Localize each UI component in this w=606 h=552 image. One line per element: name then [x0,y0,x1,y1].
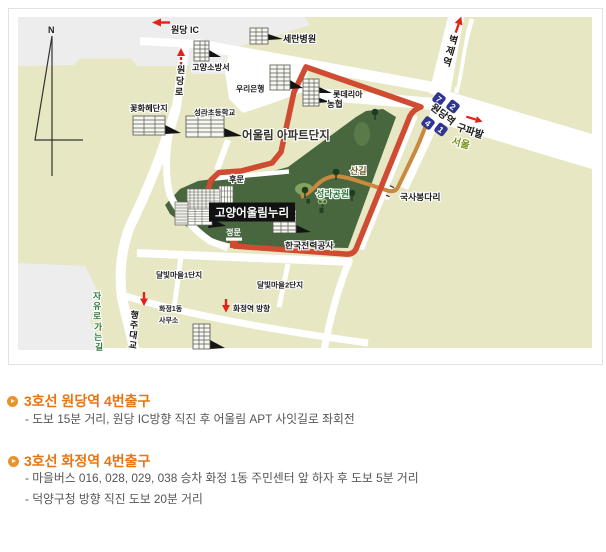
svg-text:당: 당 [176,75,185,86]
svg-text:화정1동: 화정1동 [159,304,183,313]
svg-text:가: 가 [94,321,102,332]
svg-text:롯데리아: 롯데리아 [333,89,363,99]
svg-text:N: N [48,25,55,35]
svg-text:산길: 산길 [350,165,367,176]
svg-text:성라초등학교: 성라초등학교 [194,107,235,117]
svg-text:세란병원: 세란병원 [283,33,316,44]
svg-text:길: 길 [95,341,103,352]
svg-text:꽃화헤단지: 꽃화헤단지 [130,103,168,113]
svg-text:국사봉다리: 국사봉다리 [400,191,440,202]
svg-text:교: 교 [128,340,138,351]
svg-text:자: 자 [93,290,102,301]
svg-text:로: 로 [175,87,184,97]
svg-text:사무소: 사무소 [159,316,179,325]
svg-text:정문: 정문 [226,227,242,237]
svg-text:달빛마을2단지: 달빛마을2단지 [257,280,303,290]
svg-text:어울림 아파트단지: 어울림 아파트단지 [242,128,330,142]
svg-text:로: 로 [93,311,101,321]
svg-text:달빛마을1단지: 달빛마을1단지 [156,270,202,280]
svg-text:후문: 후문 [229,174,245,184]
svg-text:유: 유 [93,301,101,311]
svg-text:는: 는 [94,332,102,342]
svg-text:농협: 농협 [327,99,343,109]
svg-text:원당 IC: 원당 IC [171,24,200,35]
svg-text:한국전력공사: 한국전력공사 [285,240,334,251]
svg-text:우리은행: 우리은행 [236,84,264,94]
svg-text:성라공원: 성라공원 [316,188,349,199]
svg-text:고양어울림누리: 고양어울림누리 [215,206,289,220]
svg-text:화정역 방향: 화정역 방향 [233,303,270,313]
svg-text:원: 원 [177,64,185,75]
svg-text:고양소방서: 고양소방서 [192,62,230,72]
